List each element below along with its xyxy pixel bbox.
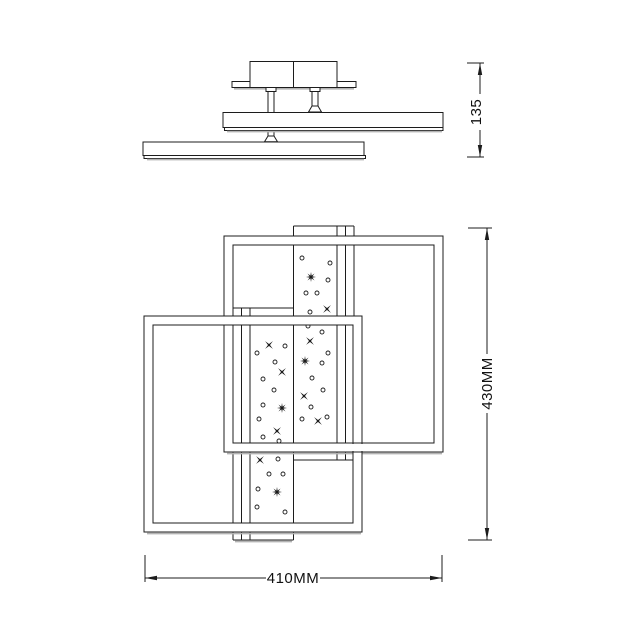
dimension-label-410mm: 410MM [267,570,320,587]
stem-left-collar [266,88,276,92]
upper-light-bar-lip [225,128,444,131]
dimension-label-430mm: 430MM [479,357,496,410]
stem-right-collar [310,88,320,92]
dimension-label-135: 135 [468,99,485,126]
technical-drawing-canvas: 135 430MM 410MM [0,0,630,630]
upper-light-bar [223,113,443,128]
lower-light-bar-lip [144,156,366,159]
lower-light-bar [143,142,364,156]
ceiling-lamp-technical-drawing: 135 430MM 410MM [0,0,630,630]
frame-interlock-patch [346,443,368,452]
